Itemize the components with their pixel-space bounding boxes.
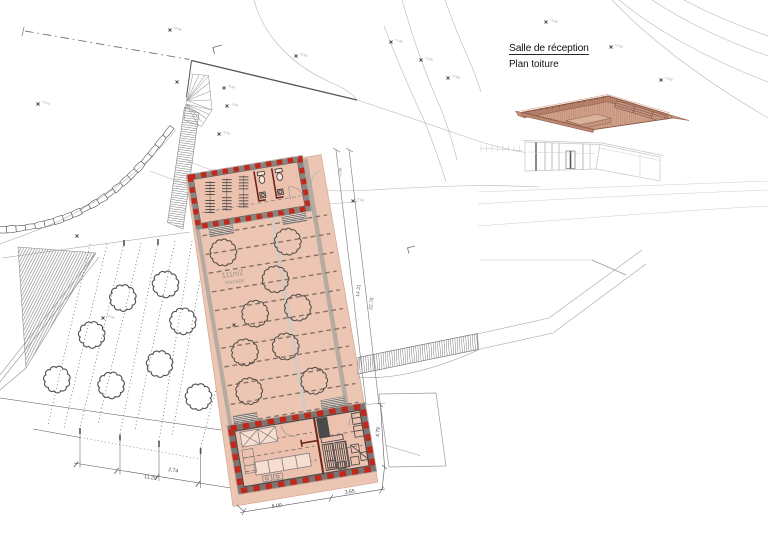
svg-text:Plan toiture: Plan toiture xyxy=(509,59,559,70)
svg-text:Salle de réception: Salle de réception xyxy=(509,43,589,54)
svg-text:4.79: 4.79 xyxy=(375,427,382,437)
svg-text:1.98: 1.98 xyxy=(337,167,343,176)
